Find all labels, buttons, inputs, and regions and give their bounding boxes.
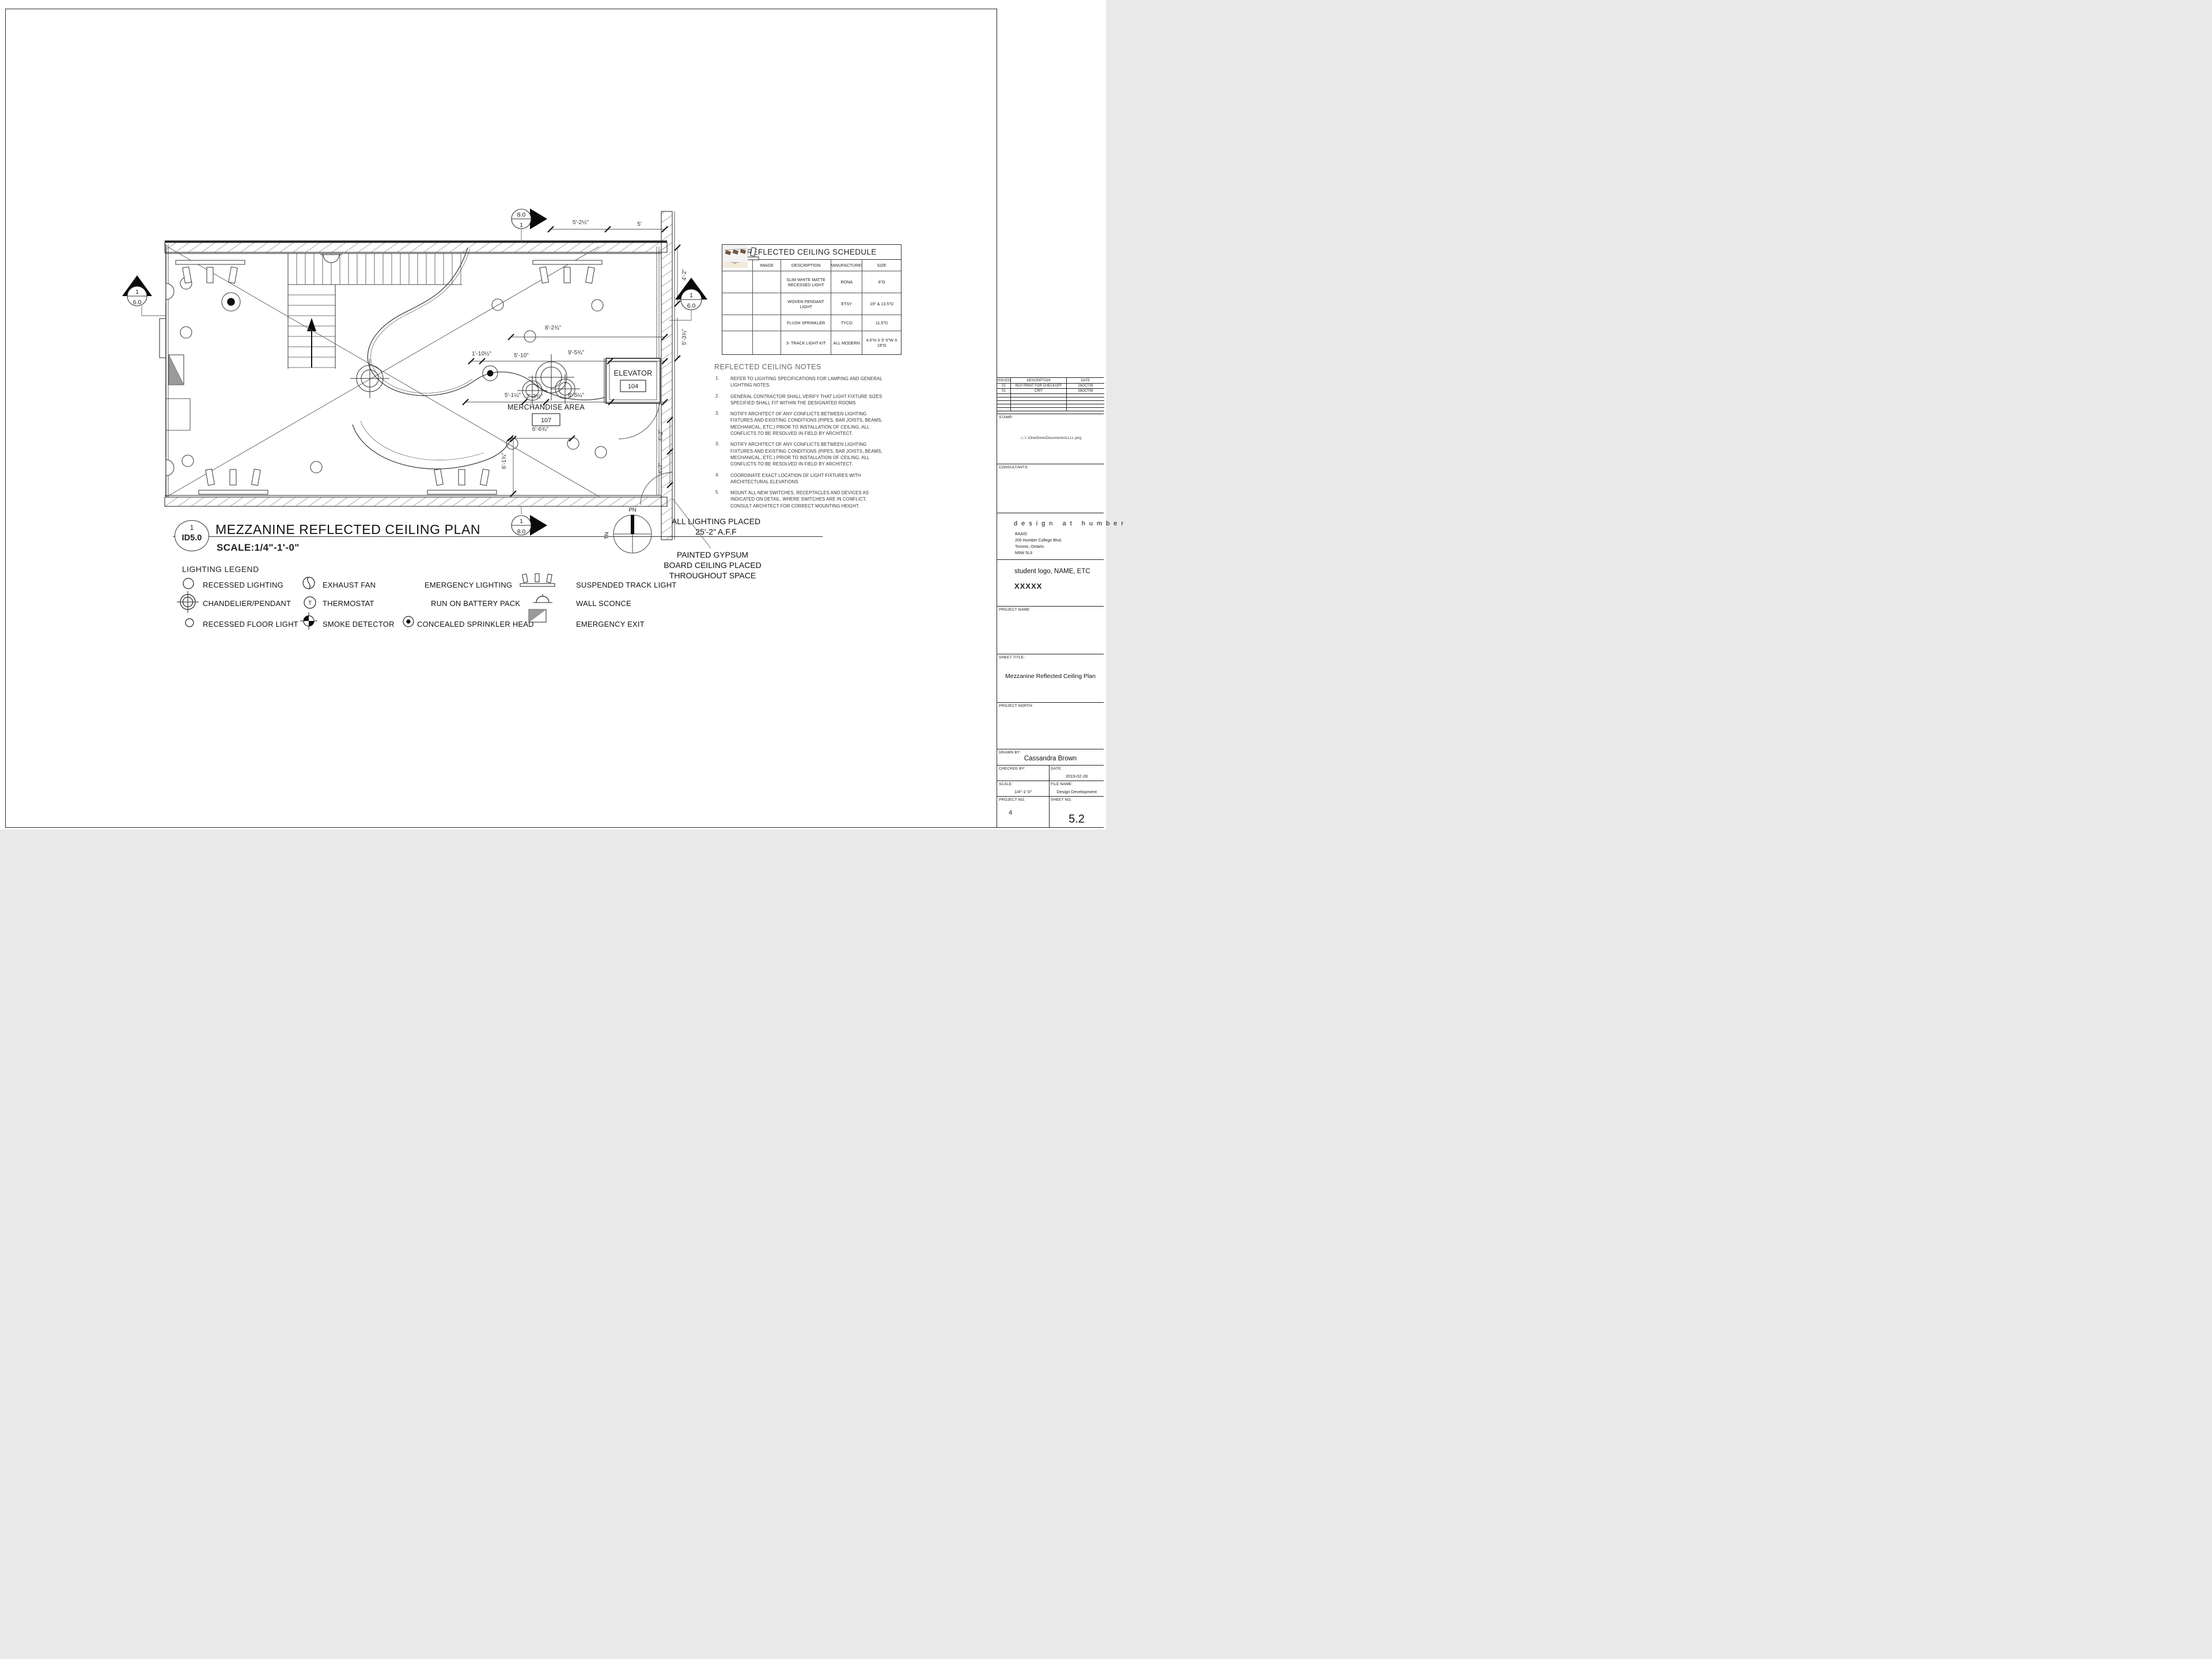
stamp-label: STAMP:: [999, 415, 1013, 419]
recessed-light-symbol: [310, 461, 322, 473]
legend-item-smoke-detector: SMOKE DETECTOR: [323, 620, 395, 628]
elevation-marker-right-detail: 1: [690, 292, 693, 299]
merchandise-room-tag: 107: [541, 417, 551, 424]
schedule-symbol-sprinkler: [722, 315, 753, 331]
emergency-exit-symbol: [169, 355, 184, 385]
checked-by-date-section: CHECKED BY: DATE: 2019-02-28: [997, 765, 1104, 781]
dimension-label: 8'-5¼": [568, 392, 585, 399]
dimension-label: 5': [637, 221, 642, 228]
schedule-manufacturer: ETSY: [831, 293, 862, 315]
gypsum-note-line3: THROUGHOUT SPACE: [669, 571, 756, 580]
student-logo-placeholder: XXXXX: [1014, 582, 1042, 590]
schedule-symbol-circle: [722, 271, 753, 293]
stamp-section: STAMP: ..\..\..\OneDrive\Documents\LLLL.…: [997, 414, 1104, 464]
firm-section: design at humber BAAID 205 Humber Colleg…: [997, 513, 1104, 559]
issued-header-cell: DESCRIPTION: [1011, 378, 1067, 384]
track-light-symbol: [176, 260, 245, 283]
wall-sconce-symbol: [320, 255, 342, 263]
firm-address-line3: Toronto, Ontario: [1015, 544, 1062, 551]
sheet: ELEVATOR 104 MERCHANDISE AREA 107 5'-2½"…: [0, 0, 1106, 829]
issued-header-cell: ISSUED: [997, 378, 1011, 384]
schedule-symbol-track: [722, 331, 753, 354]
detail-sheet-ref: ID5.0: [175, 533, 209, 543]
pendant-light-symbol: [350, 359, 389, 398]
stair: [288, 253, 462, 369]
elevation-marker-left: 1 6.0: [122, 275, 152, 306]
sheet-title-label: SHEET TITLE:: [999, 656, 1025, 660]
schedule-column-header: MANUFACTURER: [831, 260, 862, 271]
dimension-label: 2'-3½": [527, 393, 543, 400]
project-name-label: PROJECT NAME:: [999, 608, 1031, 612]
recessed-light-symbol: [567, 438, 579, 449]
elevation-marker-right: 1 6.0: [675, 278, 707, 310]
schedule-manufacturer: ALL MODERN: [831, 331, 862, 354]
issued-header-cell: DATE: [1067, 378, 1104, 384]
ceiling-note-item: 4.COORDINATE EXACT LOCATION OF LIGHT FIX…: [714, 472, 888, 486]
elevator-room-tag: 104: [628, 383, 638, 390]
pendant-light-symbol: [517, 376, 547, 406]
legend-item-wall-sconce: WALL SCONCE: [576, 599, 631, 608]
firm-address-line4: M9W 5L9: [1015, 551, 1062, 557]
section-marker-top: 8.0 1: [512, 209, 547, 229]
note-number: 2.: [715, 393, 719, 399]
legend-item-chandelier-pendant: CHANDELIER/PENDANT: [203, 599, 291, 608]
elevation-marker-left-detail: 1: [135, 289, 139, 296]
note-text: GENERAL CONTRACTOR SHALL VERIFY THAT LIG…: [730, 393, 888, 407]
detail-number: 1: [175, 524, 209, 532]
student-logo-section: student logo, NAME, ETC XXXXX: [997, 559, 1104, 606]
note-number: 5.: [715, 490, 719, 495]
section-marker-bottom-detail: 1: [520, 518, 523, 525]
note-number: 3.: [715, 411, 719, 416]
ceiling-note-item: 5.MOUNT ALL NEW SWITCHES, RECEPTACLES AN…: [714, 490, 888, 509]
track-light-photo: [753, 331, 782, 354]
woven-pendant-photo: [753, 293, 782, 315]
firm-address-line2: 205 Humber College Blvd.: [1015, 538, 1062, 544]
note-number: 1.: [715, 376, 719, 381]
schedule-size: 4.5"H X 5'-5"W X 18"D: [862, 331, 901, 354]
schedule-description: 3- TRACK LIGHT KIT: [781, 331, 831, 354]
lighting-legend-title: LIGHTING LEGEND: [182, 565, 259, 574]
scale-filename-section: SCALE: FILE NAME: 1/4"-1'-0" Design Deve…: [997, 781, 1104, 796]
recessed-light-symbol: [592, 300, 603, 311]
schedule-size: 19" & 13.5"D: [862, 293, 901, 315]
true-north-label: TN: [604, 532, 610, 540]
reflected-ceiling-schedule: REFLECTED CEILING SCHEDULE SYMBOLIMAGEDE…: [722, 244, 902, 355]
plan-title: MEZZANINE REFLECTED CEILING PLAN: [215, 522, 480, 537]
sheet-no-label: SHEET NO.: [1051, 798, 1072, 802]
schedule-row: 3- TRACK LIGHT KITALL MODERN4.5"H X 5'-5…: [722, 331, 901, 354]
merchandise-area-label: MERCHANDISE AREA: [507, 403, 585, 411]
issued-cell: [1011, 408, 1067, 411]
plan-annotations: ALL LIGHTING PLACED 25'-2" A.F.F PAINTED…: [664, 517, 762, 580]
dimension-label: 4'-7": [658, 463, 664, 474]
section-marker-top-detail: 1: [520, 222, 523, 229]
section-marker-bottom-sheet: 8.0: [517, 528, 526, 535]
legend-item-thermostat: THERMOSTAT: [323, 599, 374, 608]
flush-sprinkler-photo: [753, 315, 782, 331]
schedule-description: WOVEN PENDANT LIGHT: [781, 293, 831, 315]
schedule-size: 11.5"D: [862, 315, 901, 331]
project-north-section: PROJECT NORTH:: [997, 702, 1104, 749]
dimension-label: 6'-6¾": [532, 426, 549, 433]
checked-by-label: CHECKED BY:: [999, 767, 1025, 771]
sheet-title-value: Mezzanine Reflected Ceiling Plan: [997, 673, 1104, 680]
issued-cell: 02: [997, 384, 1011, 389]
section-marker-bottom: 1 8.0: [512, 515, 547, 536]
ceiling-note-item: 3.NOTIFY ARCHITECT OF ANY CONFLICTS BETW…: [714, 441, 888, 467]
issued-cell: [1067, 408, 1104, 411]
recessed-light-photo: [753, 271, 782, 293]
note-number: 4.: [715, 472, 719, 478]
issued-cell: 29OCT09: [1067, 384, 1104, 389]
legend-item-run-on-battery-pack: RUN ON BATTERY PACK: [431, 599, 520, 608]
consultants-section: CONSULTANTS:: [997, 464, 1104, 513]
firm-name: design at humber: [1014, 520, 1127, 527]
legend-item-recessed-floor-light: RECESSED FLOOR LIGHT: [203, 620, 298, 628]
recessed-light-symbol: [595, 446, 607, 458]
schedule-symbol-pendant: [722, 293, 753, 315]
note-text: MOUNT ALL NEW SWITCHES, RECEPTACLES AND …: [730, 490, 888, 509]
section-marker-top-sheet: 8.0: [517, 211, 526, 218]
dimension-label: 9'-5¾": [568, 350, 585, 356]
note-number: 3.: [715, 441, 719, 446]
dimension-label: 4'-2": [681, 269, 688, 281]
thermostat-glyph: T: [308, 600, 312, 607]
schedule-row: WOVEN PENDANT LIGHTETSY19" & 13.5"D: [722, 293, 901, 315]
legend-item-exhaust-fan: EXHAUST FAN: [323, 581, 376, 589]
note-text: NOTIFY ARCHITECT OF ANY CONFLICTS BETWEE…: [730, 441, 888, 467]
notes-title: REFLECTED CEILING NOTES: [714, 363, 888, 371]
schedule-column-header: SIZE: [862, 260, 901, 271]
gypsum-note-line2: BOARD CEILING PLACED: [664, 560, 762, 570]
file-name-value: Design Development: [1049, 789, 1104, 794]
reflected-ceiling-plan-drawing: ELEVATOR 104 MERCHANDISE AREA 107 5'-2½"…: [0, 0, 1106, 829]
reflected-ceiling-notes: REFLECTED CEILING NOTES 1.REFER TO LIGHT…: [714, 363, 888, 514]
schedule-row: FLUSH SPRINKLERTYCO11.5"D: [722, 315, 901, 331]
issued-cell: [997, 408, 1011, 411]
lighting-height-note-line1: ALL LIGHTING PLACED: [672, 517, 760, 526]
elevator-label: ELEVATOR: [613, 369, 652, 377]
recessed-light-symbol: [180, 327, 192, 338]
recessed-light-symbol: [524, 331, 536, 342]
dimension-label: 6'-1¾": [501, 452, 507, 469]
schedule-column-header: DESCRIPTION: [781, 260, 831, 271]
issued-cell: 28OCT09: [1067, 389, 1104, 394]
sprinkler-symbol-dot: [227, 298, 234, 305]
track-light-symbol: [427, 469, 497, 494]
scale-value: 1/4"-1'-0": [997, 789, 1049, 794]
project-no-value: 4: [1009, 809, 1012, 816]
stamp-image-path: ..\..\..\OneDrive\Documents\LLLL.png: [997, 436, 1104, 440]
project-north-label: PROJECT NORTH:: [999, 704, 1033, 708]
title-block: ISSUEDDESCRIPTIONDATE02RCP PRINT FOR CHE…: [997, 9, 1104, 828]
schedule-row: SLIM WHITE MATTE RECESSED LIGHTRONA6"D: [722, 271, 901, 293]
note-text: COORDINATE EXACT LOCATION OF LIGHT FIXTU…: [730, 472, 888, 486]
date-value: 2019-02-28: [1049, 774, 1104, 779]
consultants-label: CONSULTANTS:: [999, 465, 1029, 469]
gypsum-note-line1: PAINTED GYPSUM: [677, 550, 748, 559]
schedule-description: SLIM WHITE MATTE RECESSED LIGHT: [781, 271, 831, 293]
dimension-label: 8'-2¾": [545, 325, 562, 331]
note-text: NOTIFY ARCHITECT OF ANY CONFLICTS BETWEE…: [730, 411, 888, 437]
schedule-description: FLUSH SPRINKLER: [781, 315, 831, 331]
ceiling-note-item: 2.GENERAL CONTRACTOR SHALL VERIFY THAT L…: [714, 393, 888, 407]
file-name-label: FILE NAME:: [1051, 782, 1073, 786]
legend-item-concealed-sprinkler-head: CONCEALED SPRINKLER HEAD: [417, 620, 534, 628]
lighting-height-note-line2: 25'-2" A.F.F: [695, 527, 736, 536]
schedule-manufacturer: RONA: [831, 271, 862, 293]
dimension-label: 5'-1¼": [505, 392, 521, 399]
dimension-label: 5'-10": [514, 353, 529, 359]
note-text: REFER TO LIGHTING SPECIFICATIONS FOR LAM…: [730, 376, 888, 389]
wall-sconce-symbol: [166, 457, 174, 479]
legend-item-emergency-lighting: EMERGENCY LIGHTING: [425, 581, 512, 589]
merchandise-area: MERCHANDISE AREA 107: [507, 403, 585, 426]
legend-item-emergency-exit: EMERGENCY EXIT: [576, 620, 645, 628]
detail-callout-bubble: 1 ID5.0: [175, 520, 209, 551]
legend-item-suspended-track-light: SUSPENDED TRACK LIGHT: [576, 581, 676, 589]
date-label: DATE:: [1051, 767, 1062, 771]
north-compass: PN TN: [604, 507, 652, 553]
track-light-symbol: [533, 260, 602, 283]
issued-cell: 01: [997, 389, 1011, 394]
scale-label: SCALE:: [999, 782, 1013, 786]
dimension-label: 5'-2½": [573, 219, 589, 226]
legend-item-recessed-lighting: RECESSED LIGHTING: [203, 581, 283, 589]
plan-scale: SCALE:1/4"-1'-0": [217, 542, 300, 554]
dimension-label: 5'-3¾": [681, 328, 688, 345]
wall-sconce-symbol: [166, 281, 174, 302]
sheet-no-value: 5.2: [1049, 813, 1104, 826]
elevation-marker-left-sheet: 6.0: [133, 299, 142, 306]
ceiling-note-item: 3.NOTIFY ARCHITECT OF ANY CONFLICTS BETW…: [714, 411, 888, 437]
project-no-label: PROJECT NO.: [999, 798, 1025, 802]
recessed-light-symbol: [492, 299, 503, 310]
issued-cell: CRIT: [1011, 389, 1067, 394]
sprinkler-symbol-dot: [487, 370, 494, 377]
project-name-section: PROJECT NAME:: [997, 606, 1104, 654]
drawn-by-label: DRAWN BY:: [999, 751, 1021, 755]
schedule-size: 6"D: [862, 271, 901, 293]
issued-table: ISSUEDDESCRIPTIONDATE02RCP PRINT FOR CHE…: [997, 377, 1104, 414]
drawn-by-value: Cassandra Brown: [997, 755, 1104, 762]
drawn-by-section: DRAWN BY: Cassandra Brown: [997, 749, 1104, 765]
sheet-title-section: SHEET TITLE: Mezzanine Reflected Ceiling…: [997, 654, 1104, 702]
schedule-manufacturer: TYCO: [831, 315, 862, 331]
issued-cell: RCP PRINT FOR CHECKOFF: [1011, 384, 1067, 389]
firm-address-line1: BAAID: [1015, 532, 1062, 538]
track-light-symbol: [199, 469, 268, 494]
dimension-label: 1'-10½": [472, 351, 491, 357]
project-north-label: PN: [628, 507, 636, 513]
dimension-label: 4'-2": [658, 430, 664, 441]
recessed-light-symbol: [182, 455, 194, 467]
elevator-room: ELEVATOR 104: [604, 358, 660, 403]
project-no-sheet-no-section: PROJECT NO. SHEET NO. 4 5.2: [997, 796, 1104, 828]
ceiling-note-item: 1.REFER TO LIGHTING SPECIFICATIONS FOR L…: [714, 376, 888, 389]
student-logo-text: student logo, NAME, ETC: [1014, 568, 1090, 575]
elevation-marker-right-sheet: 6.0: [687, 302, 696, 309]
